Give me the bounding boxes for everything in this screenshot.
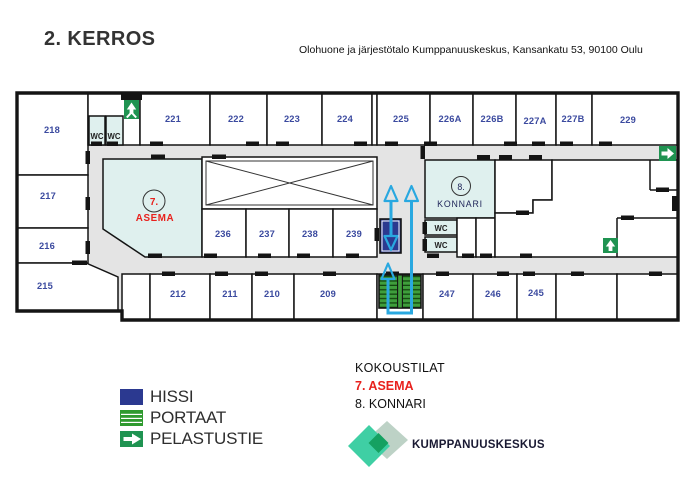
- room-246-label: 246: [485, 289, 501, 299]
- room-223-label: 223: [284, 114, 300, 124]
- room-237-label: 237: [259, 229, 275, 239]
- room-bottom-narrow: [122, 274, 150, 320]
- room-247-label: 247: [439, 289, 455, 299]
- room-215-label: 215: [37, 281, 53, 291]
- room-227A-label: 227A: [523, 116, 546, 126]
- escape-route-icon: [120, 431, 143, 447]
- room-217-label: 217: [40, 191, 56, 201]
- room-227B-label: 227B: [561, 114, 584, 124]
- stairs-icon: [120, 410, 143, 426]
- room-238-label: 238: [302, 229, 318, 239]
- exit-arrow-icon-top-right: [659, 146, 676, 161]
- stairs-up-icon-top-left: [121, 92, 142, 119]
- kumppanuuskeskus-logo: KUMPPANUUSKESKUS: [347, 421, 545, 469]
- stairs-up-icon-right: [603, 238, 618, 253]
- room7-number: 7.: [150, 197, 159, 208]
- room-229-label: 229: [620, 115, 636, 125]
- small-room-b: [476, 218, 495, 257]
- room-217: [17, 175, 88, 228]
- room-236-label: 236: [215, 229, 231, 239]
- legend-label-pelastustie: PELASTUSTIE: [150, 429, 263, 449]
- room-bottom-unlabeled-1: [556, 274, 617, 320]
- legend-label-portaat: PORTAAT: [150, 408, 226, 428]
- logo-diamonds-icon: [347, 421, 409, 469]
- logo-text: KUMPPANUUSKESKUS: [412, 439, 545, 451]
- open-void-area: [202, 157, 377, 209]
- floor-plan: 218 217 216 215 221 222 223 224 225 226A…: [0, 0, 700, 345]
- legend-label-hissi: HISSI: [150, 387, 193, 407]
- room8-name: KONNARI: [437, 199, 483, 209]
- meeting-room-8: 8. KONNARI: [355, 395, 445, 413]
- wc-label-2: WC: [108, 132, 121, 141]
- room-245-label: 245: [528, 288, 544, 298]
- meeting-room-7: 7. ASEMA: [355, 377, 445, 395]
- legend: HISSI PORTAAT PELASTUSTIE: [120, 388, 263, 451]
- legend-row-portaat: PORTAAT: [120, 409, 263, 427]
- room-212-label: 212: [170, 289, 186, 299]
- legend-row-pelastustie: PELASTUSTIE: [120, 430, 263, 448]
- floor-plan-page: 2. KERROS Olohuone ja järjestötalo Kumpp…: [0, 0, 700, 494]
- room-211-label: 211: [222, 289, 238, 299]
- room-239-label: 239: [346, 229, 362, 239]
- room-216-label: 216: [39, 241, 55, 251]
- room8-number: 8.: [457, 182, 464, 192]
- small-room-a: [457, 218, 476, 257]
- room-bottom-unlabeled-2: [617, 274, 678, 320]
- wc-label-1: WC: [91, 132, 104, 141]
- room-226A-label: 226A: [438, 114, 461, 124]
- room-221-label: 221: [165, 114, 181, 124]
- room-215: [17, 263, 118, 311]
- meeting-rooms-title: KOKOUSTILAT: [355, 359, 445, 377]
- elevator-icon: [120, 389, 143, 405]
- legend-row-hissi: HISSI: [120, 388, 263, 406]
- room-209-label: 209: [320, 289, 336, 299]
- room-210-label: 210: [264, 289, 280, 299]
- room-218-label: 218: [44, 125, 60, 135]
- wc-label-4: WC: [435, 241, 448, 250]
- room7-name: ASEMA: [136, 213, 174, 224]
- room-226B-label: 226B: [480, 114, 503, 124]
- room-222-label: 222: [228, 114, 244, 124]
- wc-label-3: WC: [435, 224, 448, 233]
- room-224-label: 224: [337, 114, 354, 124]
- meeting-rooms-list: KOKOUSTILAT 7. ASEMA 8. KONNARI: [355, 359, 445, 413]
- room-225-label: 225: [393, 114, 409, 124]
